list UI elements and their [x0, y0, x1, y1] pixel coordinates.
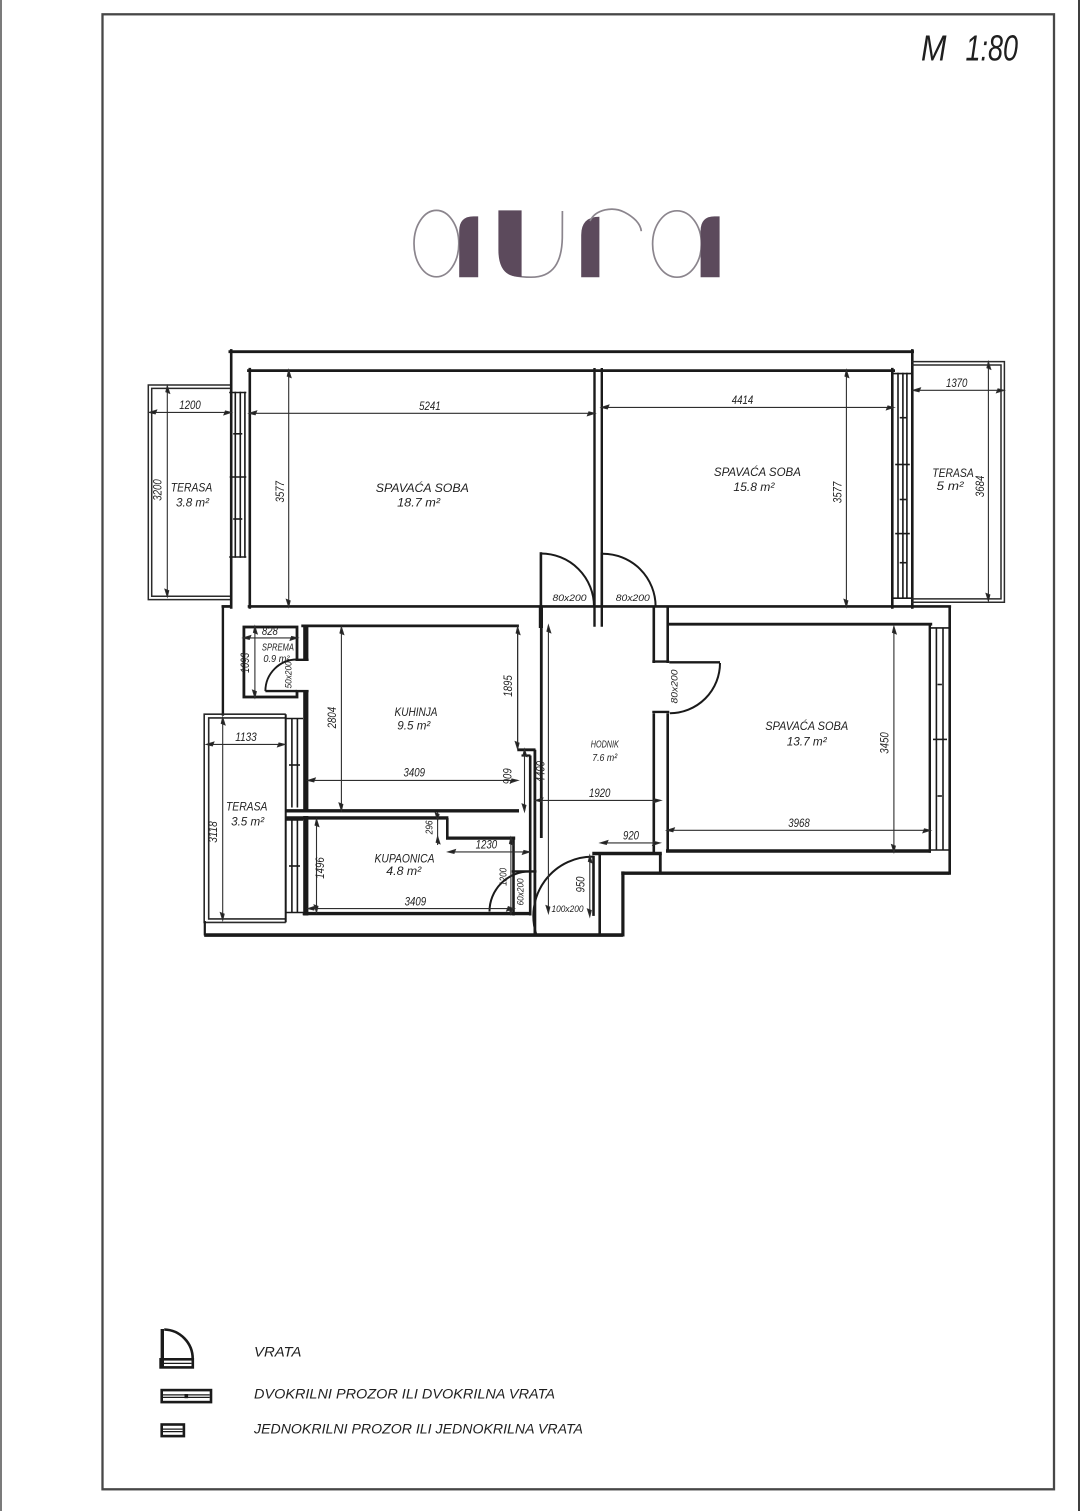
svg-text:1895: 1895 — [501, 675, 515, 697]
svg-text:M: M — [921, 28, 947, 69]
svg-text:920: 920 — [623, 829, 639, 843]
svg-text:3.5 m²: 3.5 m² — [231, 815, 265, 829]
svg-text:909: 909 — [501, 768, 515, 784]
svg-text:15.8 m²: 15.8 m² — [733, 480, 775, 494]
svg-text:60x200: 60x200 — [516, 878, 526, 905]
svg-text:4.8 m²: 4.8 m² — [386, 864, 422, 878]
svg-text:3450: 3450 — [877, 732, 891, 754]
svg-text:13.7 m²: 13.7 m² — [787, 735, 828, 749]
svg-text:1920: 1920 — [589, 786, 611, 800]
svg-text:3968: 3968 — [788, 816, 810, 830]
svg-text:JEDNOKRILNI PROZOR ILI JEDNOKR: JEDNOKRILNI PROZOR ILI JEDNOKRILNA VRATA — [253, 1422, 583, 1437]
svg-text:1200: 1200 — [179, 398, 201, 412]
svg-text:80x200: 80x200 — [616, 593, 651, 604]
svg-text:18.7 m²: 18.7 m² — [397, 496, 441, 510]
svg-text:100x200: 100x200 — [552, 904, 585, 915]
svg-text:HODNIK: HODNIK — [591, 739, 620, 751]
svg-text:SPAVAĆA SOBA: SPAVAĆA SOBA — [376, 480, 469, 495]
svg-text:4400: 4400 — [534, 761, 548, 783]
svg-text:KUHINJA: KUHINJA — [395, 705, 438, 719]
svg-text:TERASA: TERASA — [171, 481, 213, 495]
svg-text:1:80: 1:80 — [966, 28, 1019, 69]
svg-text:1370: 1370 — [946, 376, 968, 390]
svg-text:1200: 1200 — [497, 868, 509, 886]
svg-text:1230: 1230 — [476, 837, 498, 851]
svg-text:3409: 3409 — [405, 894, 427, 908]
svg-text:9.5 m²: 9.5 m² — [397, 719, 431, 733]
svg-text:950: 950 — [573, 876, 587, 892]
svg-text:SPAVAĆA SOBA: SPAVAĆA SOBA — [714, 464, 801, 479]
svg-text:5 m²: 5 m² — [937, 479, 965, 493]
svg-text:1133: 1133 — [235, 730, 257, 744]
svg-text:3409: 3409 — [404, 766, 426, 780]
svg-text:3118: 3118 — [206, 821, 220, 843]
svg-text:3.8 m²: 3.8 m² — [176, 496, 210, 510]
svg-text:80x200: 80x200 — [670, 669, 681, 704]
svg-text:VRATA: VRATA — [254, 1345, 302, 1360]
svg-text:TERASA: TERASA — [932, 466, 974, 480]
svg-text:7.6 m²: 7.6 m² — [592, 752, 617, 764]
svg-text:3684: 3684 — [973, 475, 987, 497]
svg-text:SPREMA: SPREMA — [262, 643, 294, 654]
svg-text:1496: 1496 — [313, 857, 327, 879]
svg-text:3200: 3200 — [151, 479, 165, 501]
svg-text:2804: 2804 — [325, 707, 339, 730]
svg-text:3577: 3577 — [273, 480, 287, 503]
svg-text:828: 828 — [262, 626, 279, 638]
svg-text:3577: 3577 — [831, 481, 845, 504]
svg-text:DVOKRILNI PROZOR ILI DVOKRILNA: DVOKRILNI PROZOR ILI DVOKRILNA VRATA — [254, 1387, 555, 1402]
svg-text:80x200: 80x200 — [553, 593, 588, 604]
svg-text:1093: 1093 — [240, 652, 252, 672]
svg-text:50x200: 50x200 — [284, 661, 294, 688]
svg-text:5241: 5241 — [419, 399, 441, 413]
svg-text:4414: 4414 — [732, 393, 754, 407]
svg-text:SPAVAĆA SOBA: SPAVAĆA SOBA — [765, 718, 848, 733]
svg-text:TERASA: TERASA — [226, 800, 268, 814]
svg-text:296: 296 — [424, 820, 436, 835]
